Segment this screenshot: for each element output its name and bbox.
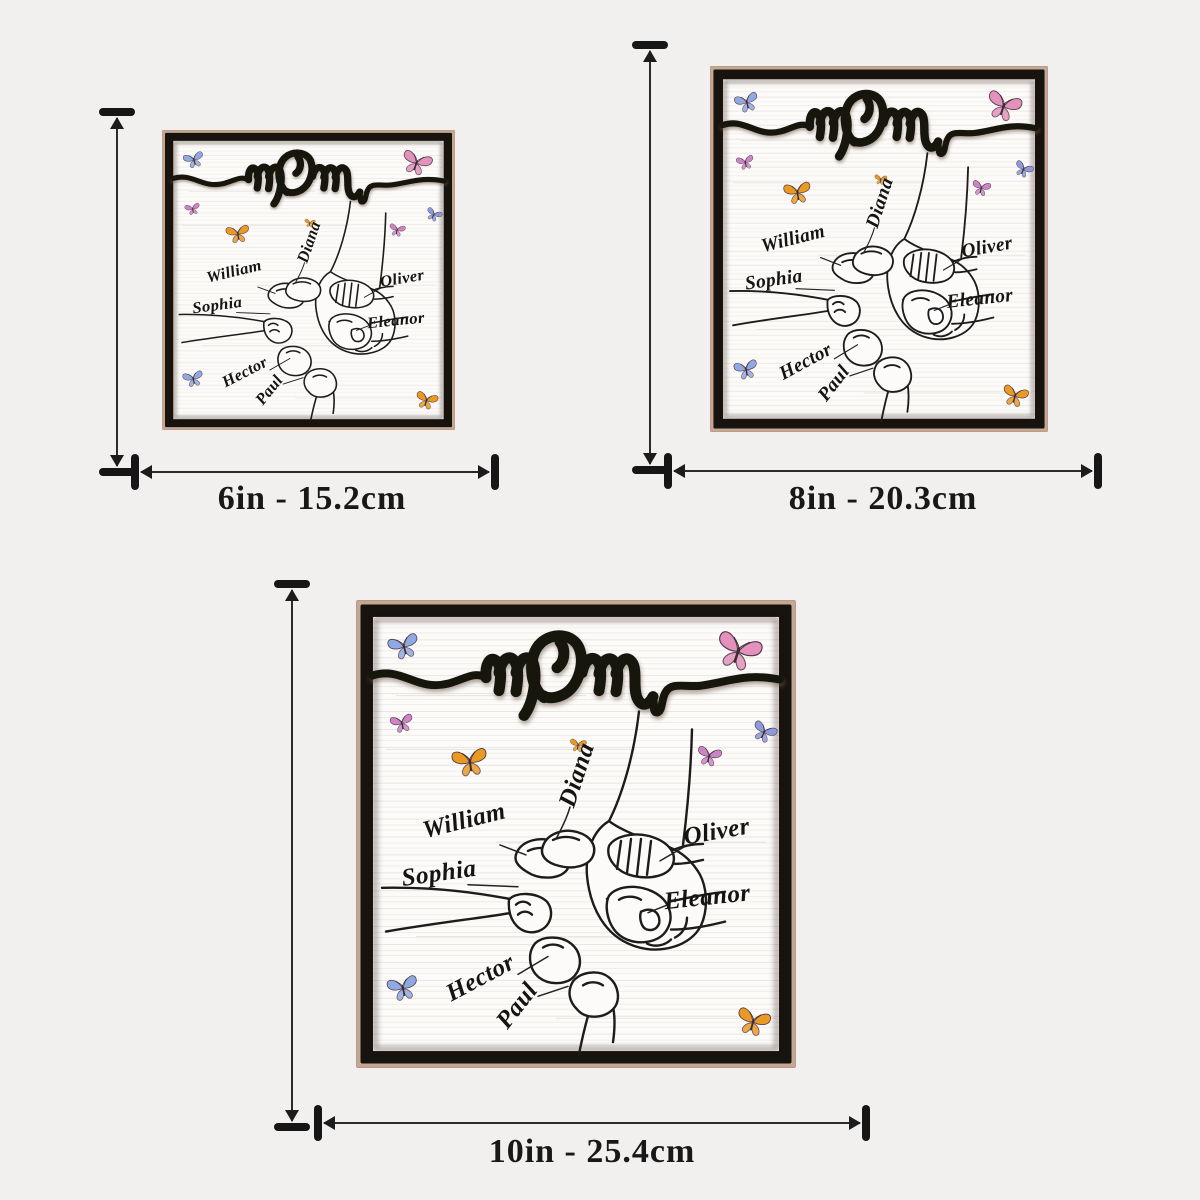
size-label-10in: 10in - 25.4cm: [432, 1133, 752, 1171]
size-label-6in: 6in - 15.2cm: [152, 480, 472, 518]
size-label-8in: 8in - 20.3cm: [723, 480, 1043, 518]
plaque-preview-8in: [710, 66, 1048, 432]
size-comparison-stage: 6in - 15.2cm 8in - 20.3cm: [0, 0, 1200, 1200]
height-measure-10in: [274, 580, 310, 1131]
height-measure-8in: [632, 41, 668, 474]
plaque-preview-6in: [162, 130, 455, 430]
plaque-preview-10in: [356, 600, 796, 1068]
height-measure-6in: [99, 108, 135, 476]
